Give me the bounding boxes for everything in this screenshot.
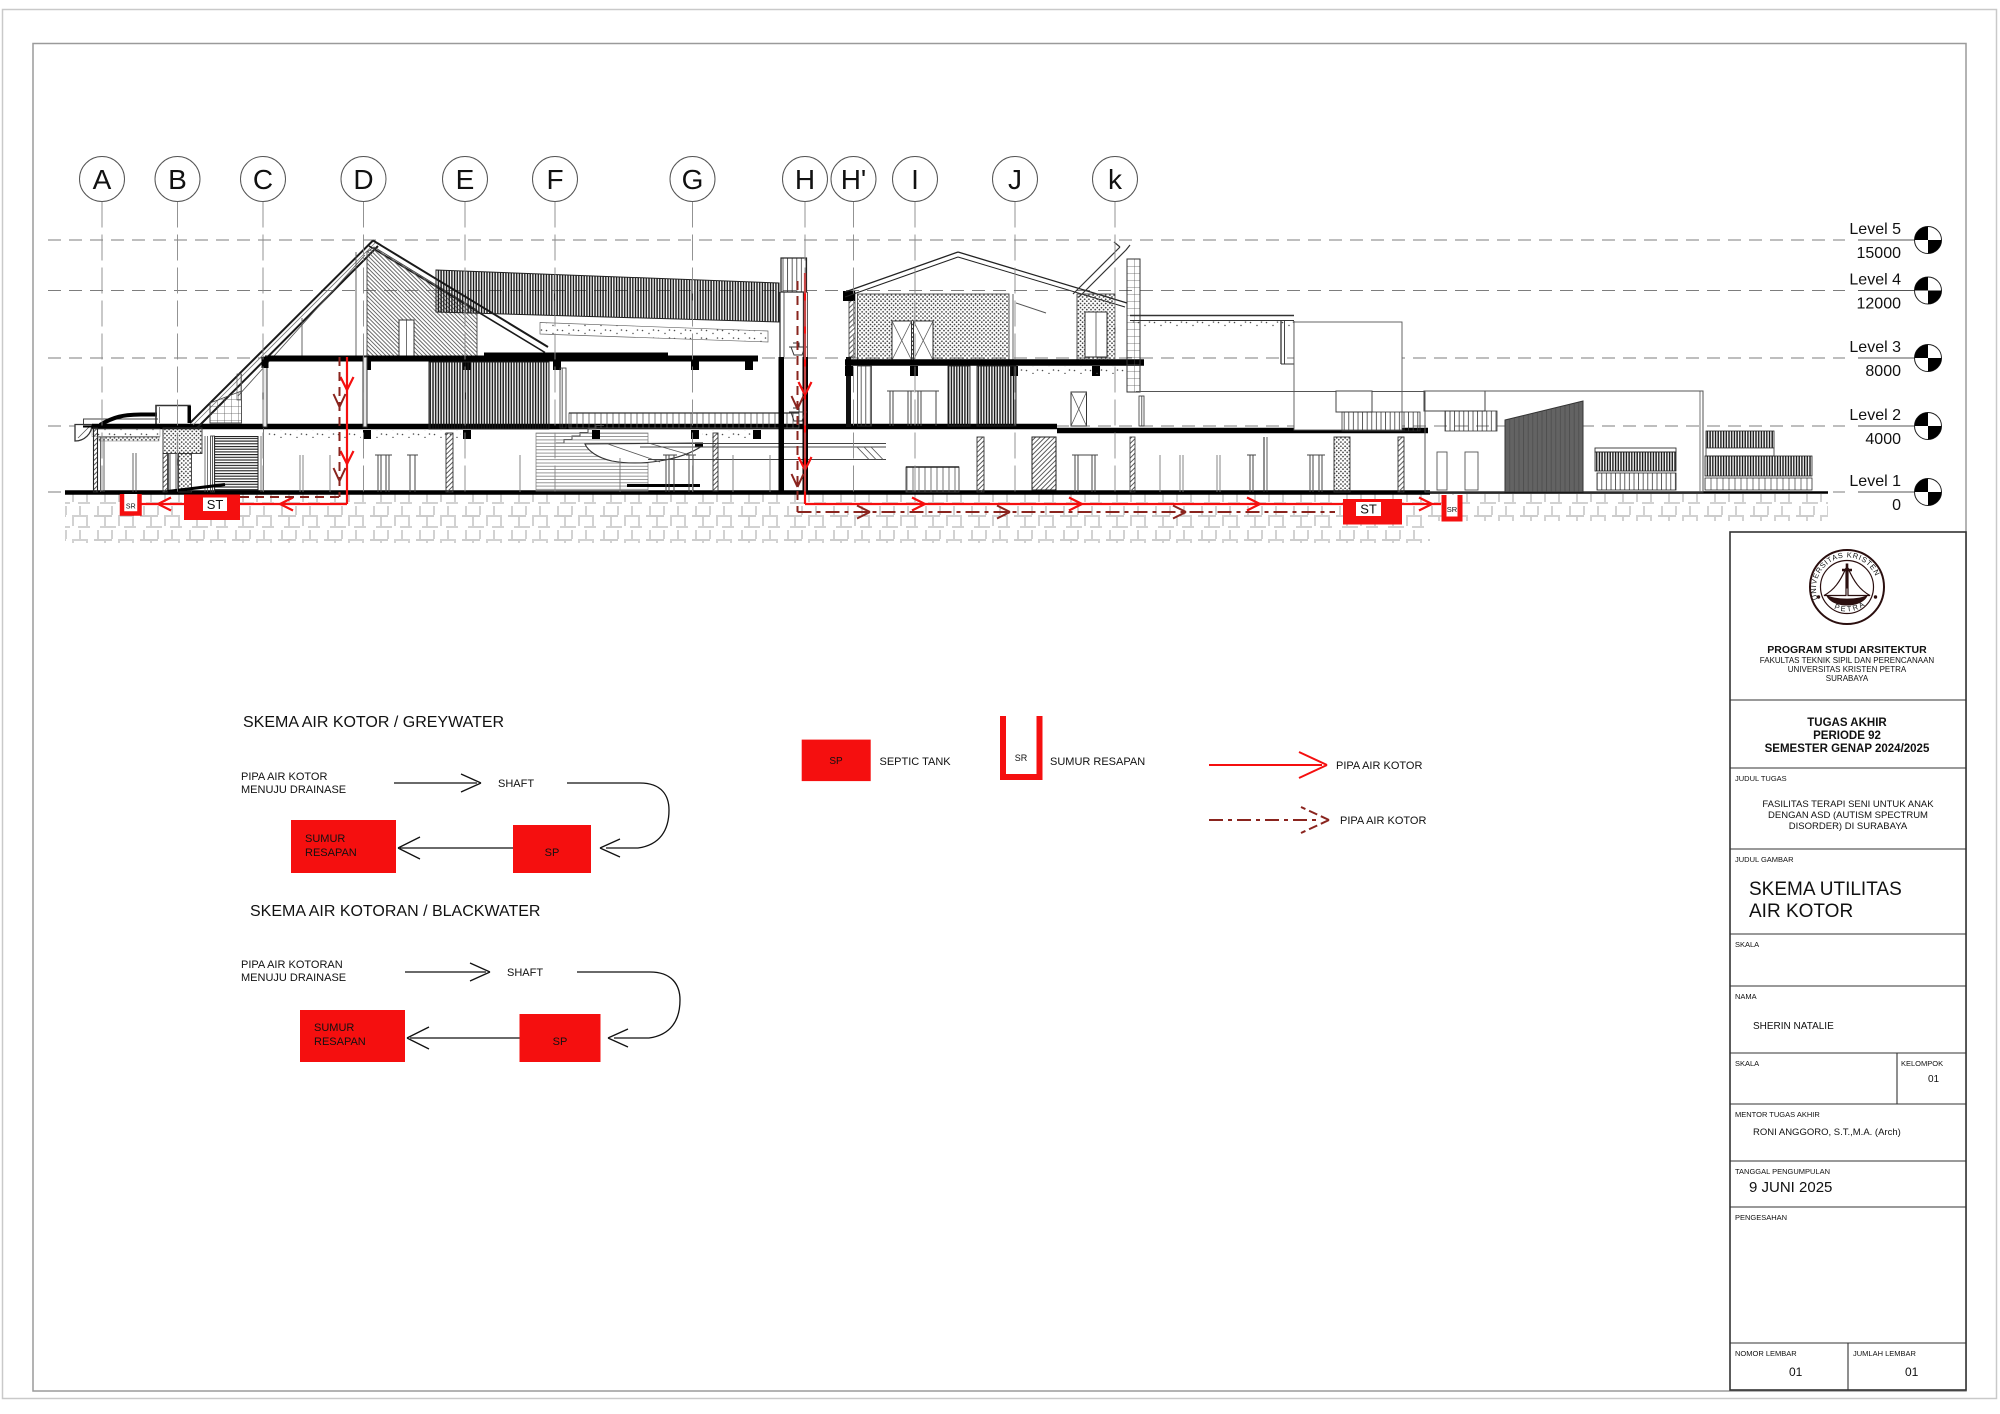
svg-text:SR: SR bbox=[126, 504, 136, 511]
svg-text:SHERIN NATALIE: SHERIN NATALIE bbox=[1753, 1021, 1834, 1032]
svg-text:SP: SP bbox=[545, 847, 560, 859]
svg-text:RESAPAN: RESAPAN bbox=[305, 847, 357, 859]
svg-text:TUGAS AKHIR: TUGAS AKHIR bbox=[1807, 717, 1887, 729]
svg-text:UNIVERSITAS KRISTEN PETRA: UNIVERSITAS KRISTEN PETRA bbox=[1788, 665, 1907, 674]
svg-text:PIPA AIR KOTOR: PIPA AIR KOTOR bbox=[241, 771, 327, 783]
svg-text:MENTOR TUGAS AKHIR: MENTOR TUGAS AKHIR bbox=[1735, 1110, 1820, 1119]
svg-text:C: C bbox=[253, 164, 273, 195]
svg-text:TANGGAL PENGUMPULAN: TANGGAL PENGUMPULAN bbox=[1735, 1167, 1830, 1176]
svg-text:H': H' bbox=[841, 164, 867, 195]
svg-text:8000: 8000 bbox=[1865, 363, 1901, 380]
svg-text:MENUJU DRAINASE: MENUJU DRAINASE bbox=[241, 972, 346, 984]
svg-text:SP: SP bbox=[553, 1036, 568, 1048]
svg-text:k: k bbox=[1108, 164, 1123, 195]
svg-text:PERIODE 92: PERIODE 92 bbox=[1813, 730, 1881, 742]
svg-text:H: H bbox=[795, 164, 815, 195]
svg-text:B: B bbox=[168, 164, 187, 195]
svg-text:SUMUR: SUMUR bbox=[305, 833, 345, 845]
svg-text:PIPA AIR KOTOR: PIPA AIR KOTOR bbox=[1336, 760, 1422, 772]
svg-text:12000: 12000 bbox=[1857, 296, 1902, 313]
svg-text:SEMESTER GENAP 2024/2025: SEMESTER GENAP 2024/2025 bbox=[1765, 743, 1930, 755]
svg-text:RESAPAN: RESAPAN bbox=[314, 1036, 366, 1048]
svg-text:01: 01 bbox=[1789, 1365, 1803, 1379]
svg-text:J: J bbox=[1008, 164, 1022, 195]
svg-text:NOMOR LEMBAR: NOMOR LEMBAR bbox=[1735, 1349, 1797, 1358]
svg-text:PROGRAM STUDI ARSITEKTUR: PROGRAM STUDI ARSITEKTUR bbox=[1767, 644, 1927, 656]
svg-text:ST: ST bbox=[1360, 502, 1377, 517]
svg-text:Level 5: Level 5 bbox=[1849, 221, 1901, 238]
svg-text:SHAFT: SHAFT bbox=[507, 967, 543, 979]
svg-text:SKALA: SKALA bbox=[1735, 1059, 1759, 1068]
svg-text:9 JUNI 2025: 9 JUNI 2025 bbox=[1749, 1179, 1832, 1196]
svg-text:0: 0 bbox=[1892, 497, 1901, 514]
svg-text:SKEMA AIR KOTORAN / BLACKWATER: SKEMA AIR KOTORAN / BLACKWATER bbox=[250, 903, 540, 920]
svg-text:Level 3: Level 3 bbox=[1849, 339, 1901, 356]
svg-text:SR: SR bbox=[1447, 505, 1458, 514]
svg-text:D: D bbox=[353, 164, 373, 195]
svg-text:SUMUR RESAPAN: SUMUR RESAPAN bbox=[1050, 756, 1145, 768]
svg-text:PIPA AIR KOTORAN: PIPA AIR KOTORAN bbox=[241, 959, 343, 971]
svg-text:Level 4: Level 4 bbox=[1849, 272, 1901, 289]
svg-text:4000: 4000 bbox=[1865, 431, 1901, 448]
svg-text:01: 01 bbox=[1928, 1074, 1940, 1085]
svg-text:SKEMA AIR KOTOR / GREYWATER: SKEMA AIR KOTOR / GREYWATER bbox=[243, 714, 504, 731]
svg-text:SKALA: SKALA bbox=[1735, 940, 1759, 949]
svg-text:SEPTIC TANK: SEPTIC TANK bbox=[880, 756, 952, 768]
svg-text:FASILITAS TERAPI SENI UNTUK AN: FASILITAS TERAPI SENI UNTUK ANAK bbox=[1762, 799, 1934, 810]
svg-text:E: E bbox=[456, 164, 475, 195]
svg-text:JUMLAH LEMBAR: JUMLAH LEMBAR bbox=[1853, 1349, 1917, 1358]
svg-text:DENGAN ASD (AUTISM SPECTRUM: DENGAN ASD (AUTISM SPECTRUM bbox=[1768, 810, 1928, 821]
svg-text:JUDUL TUGAS: JUDUL TUGAS bbox=[1735, 774, 1787, 783]
svg-text:Level 1: Level 1 bbox=[1849, 473, 1901, 490]
svg-text:KELOMPOK: KELOMPOK bbox=[1901, 1059, 1943, 1068]
svg-text:G: G bbox=[682, 164, 704, 195]
svg-text:AIR KOTOR: AIR KOTOR bbox=[1749, 901, 1853, 922]
svg-text:F: F bbox=[546, 164, 563, 195]
svg-text:JUDUL GAMBAR: JUDUL GAMBAR bbox=[1735, 855, 1794, 864]
svg-text:SHAFT: SHAFT bbox=[498, 778, 534, 790]
svg-text:PIPA AIR KOTOR: PIPA AIR KOTOR bbox=[1340, 815, 1426, 827]
svg-text:SKEMA UTILITAS: SKEMA UTILITAS bbox=[1749, 879, 1902, 900]
svg-text:I: I bbox=[911, 164, 919, 195]
svg-text:MENUJU DRAINASE: MENUJU DRAINASE bbox=[241, 784, 346, 796]
svg-text:PENGESAHAN: PENGESAHAN bbox=[1735, 1213, 1787, 1222]
svg-text:01: 01 bbox=[1905, 1365, 1919, 1379]
svg-text:Level 2: Level 2 bbox=[1849, 407, 1901, 424]
svg-text:SURABAYA: SURABAYA bbox=[1826, 674, 1869, 683]
svg-text:FAKULTAS TEKNIK SIPIL DAN PERE: FAKULTAS TEKNIK SIPIL DAN PERENCANAAN bbox=[1760, 656, 1935, 665]
svg-text:RONI ANGGORO, S.T.,M.A. (Arch): RONI ANGGORO, S.T.,M.A. (Arch) bbox=[1753, 1127, 1901, 1138]
svg-text:SP: SP bbox=[829, 756, 843, 767]
svg-text:DISORDER) DI SURABAYA: DISORDER) DI SURABAYA bbox=[1789, 821, 1908, 832]
svg-text:SR: SR bbox=[1015, 753, 1028, 763]
svg-text:SUMUR: SUMUR bbox=[314, 1022, 354, 1034]
svg-text:A: A bbox=[93, 164, 112, 195]
svg-text:ST: ST bbox=[207, 497, 224, 512]
svg-text:15000: 15000 bbox=[1857, 245, 1902, 262]
svg-text:NAMA: NAMA bbox=[1735, 992, 1757, 1001]
